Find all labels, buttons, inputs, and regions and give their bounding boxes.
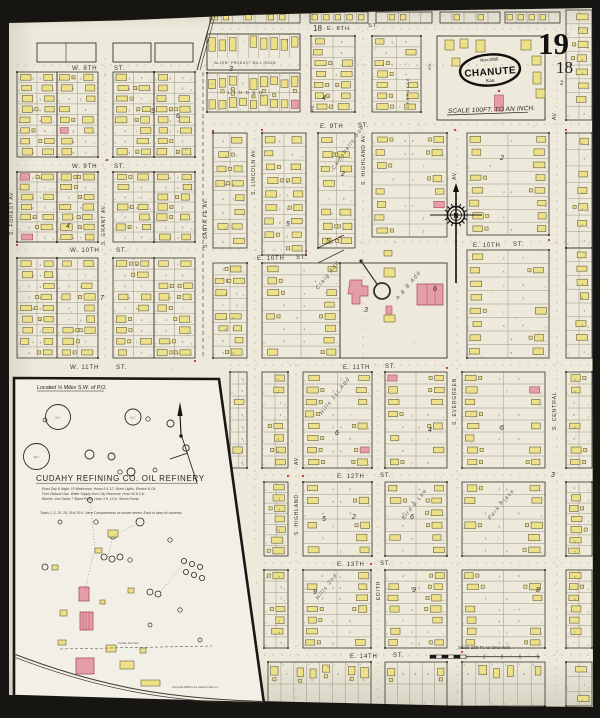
svg-text:S. HIGHLAND: S. HIGHLAND (294, 494, 300, 535)
svg-text:4: 4 (322, 95, 326, 102)
svg-text:No 7: No 7 (56, 418, 62, 420)
svg-text:Located ¼ Miles S.W. of P.O.: Located ¼ Miles S.W. of P.O. (37, 385, 107, 391)
svg-text:S. GRANT AV.: S. GRANT AV. (101, 204, 107, 245)
svg-text:“ALLEN” PRODUCT MILL ROOM: “ALLEN” PRODUCT MILL ROOM (213, 61, 276, 65)
svg-text:CHEROKEE: CHEROKEE (406, 77, 410, 108)
svg-text:W. 10TH: W. 10TH (70, 247, 100, 254)
svg-text:ST.: ST. (385, 364, 396, 370)
svg-text:4: 4 (66, 223, 70, 230)
svg-text:6: 6 (335, 430, 339, 437)
svg-text:S. EVERGREEN: S. EVERGREEN (452, 378, 458, 425)
svg-text:E. 9TH: E. 9TH (320, 124, 343, 130)
svg-text:E. 10TH: E. 10TH (473, 243, 501, 249)
svg-text:E. 11TH: E. 11TH (343, 365, 370, 371)
svg-text:W. 9TH: W. 9TH (72, 163, 97, 170)
svg-text:6: 6 (433, 286, 437, 293)
svg-text:2: 2 (499, 155, 504, 162)
svg-text:3: 3 (364, 307, 368, 314)
svg-text:Center line Sec.: Center line Sec. (118, 641, 140, 645)
svg-text:E. 8TH: E. 8TH (327, 26, 350, 32)
svg-text:4: 4 (428, 427, 432, 434)
svg-text:ST.: ST. (513, 242, 524, 248)
svg-text:ST.: ST. (116, 247, 127, 254)
svg-text:ST.: ST. (380, 561, 391, 567)
svg-text:ST.: ST. (380, 473, 391, 479)
svg-text:S. LINCOLN AV.: S. LINCOLN AV. (251, 148, 257, 195)
svg-text:No 7: No 7 (131, 418, 137, 420)
svg-text:3: 3 (229, 66, 233, 73)
svg-text:Tanks 1, 2, 20, 28, 29 & 30 K.: Tanks 1, 2, 20, 28, 29 & 30 K. have Comp… (40, 511, 182, 515)
svg-text:18: 18 (313, 24, 322, 33)
svg-text:ST.: ST. (368, 23, 379, 29)
svg-text:S. HIGHLAND AV.: S. HIGHLAND AV. (361, 133, 367, 185)
svg-text:Kas.: Kas. (486, 78, 496, 85)
svg-text:2: 2 (351, 514, 356, 521)
svg-text:5: 5 (322, 516, 326, 523)
svg-text:EDITH: EDITH (376, 581, 382, 600)
svg-text:8: 8 (536, 587, 540, 594)
svg-text:Scale 100 Ft. to One Inch.: Scale 100 Ft. to One Inch. (458, 645, 511, 650)
svg-text:ST.: ST. (393, 653, 404, 659)
svg-text:ST.: ST. (114, 65, 125, 72)
svg-text:3: 3 (551, 472, 555, 479)
svg-text:S. CENTRAL: S. CENTRAL (552, 391, 558, 430)
svg-text:CUDAHY REFINING CO. OIL REFINE: CUDAHY REFINING CO. OIL REFINERY (36, 474, 205, 483)
svg-text:ST.: ST. (296, 255, 307, 261)
svg-text:ST.: ST. (114, 163, 125, 170)
svg-text:5: 5 (286, 221, 290, 228)
svg-text:LINDEN: LINDEN (228, 90, 266, 95)
svg-text:6: 6 (410, 514, 414, 521)
svg-text:18: 18 (556, 58, 573, 77)
svg-text:2: 2 (340, 171, 345, 178)
svg-text:AV.: AV. (310, 103, 315, 112)
svg-text:W. 11TH: W. 11TH (70, 364, 99, 371)
svg-text:W. 8TH: W. 8TH (72, 65, 97, 72)
svg-text:19: 19 (538, 26, 569, 61)
svg-text:5: 5 (326, 238, 330, 245)
svg-text:E. 10TH: E. 10TH (257, 256, 285, 262)
svg-text:9: 9 (151, 108, 155, 115)
svg-text:E. 14TH: E. 14TH (350, 654, 378, 660)
svg-text:S. FOREST AV.: S. FOREST AV. (9, 190, 15, 235)
svg-text:6: 6 (176, 113, 180, 120)
svg-text:9: 9 (412, 587, 416, 594)
svg-text:N: N (453, 213, 458, 220)
svg-text:6: 6 (500, 425, 504, 432)
svg-text:Copyright 1896 by the Sanborn: Copyright 1896 by the Sanborn Map Co. (172, 685, 219, 689)
svg-text:S. SANTA FE AV.: S. SANTA FE AV. (203, 198, 209, 248)
svg-text:ST.: ST. (116, 364, 127, 371)
svg-text:Fuel: Natural Gas. Water Suppl: Fuel: Natural Gas. Water Supply from Cit… (42, 492, 145, 496)
svg-text:No 7: No 7 (34, 457, 40, 459)
svg-text:AV.: AV. (452, 170, 458, 180)
svg-text:AV.: AV. (294, 455, 300, 465)
svg-text:AV.: AV. (427, 61, 432, 70)
svg-text:Runs Day & Night. 10 Watchman.: Runs Day & Night. 10 Watchman. Hours 6 &… (42, 487, 156, 491)
